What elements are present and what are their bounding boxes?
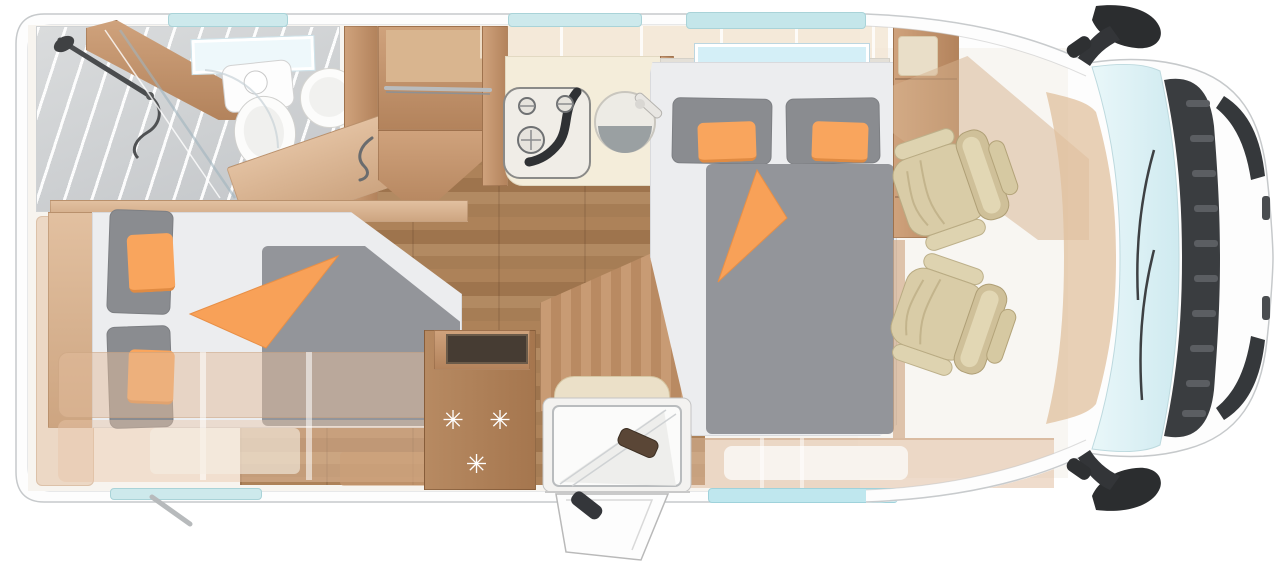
vanity-handle-icon	[360, 138, 372, 180]
cab-seat-passenger	[881, 248, 1027, 392]
awning-arm-icon	[152, 497, 190, 524]
cab-seat-driver	[883, 112, 1029, 256]
bumper-accent-bottom	[1216, 336, 1265, 420]
cooktop	[504, 88, 590, 178]
side-mirror-top-icon	[1064, 5, 1161, 66]
double-bed-blanket-triangle	[718, 170, 787, 282]
bumper-accent-top	[1216, 96, 1265, 180]
shower-glass-line-2	[105, 30, 220, 198]
side-mirror-bottom-icon	[1064, 450, 1161, 511]
detail-overlay	[0, 0, 1280, 565]
dashboard	[1046, 92, 1116, 424]
kitchen-sink	[595, 92, 663, 153]
entry-door	[543, 398, 691, 560]
motorhome-floorplan: ✳ ✳ ✳	[0, 0, 1280, 565]
shower-glass-arc	[205, 70, 278, 148]
bottom-wall-wedge	[866, 440, 1090, 503]
top-wall-wedge	[866, 13, 1090, 76]
single-bed-blanket-triangle	[190, 256, 338, 348]
shower-glass-line	[120, 30, 235, 198]
headlight-mark-bottom	[1262, 296, 1270, 320]
clothes-rail	[386, 88, 490, 90]
headlight-mark-top	[1262, 196, 1270, 220]
shower-fixture-icon	[51, 32, 159, 158]
